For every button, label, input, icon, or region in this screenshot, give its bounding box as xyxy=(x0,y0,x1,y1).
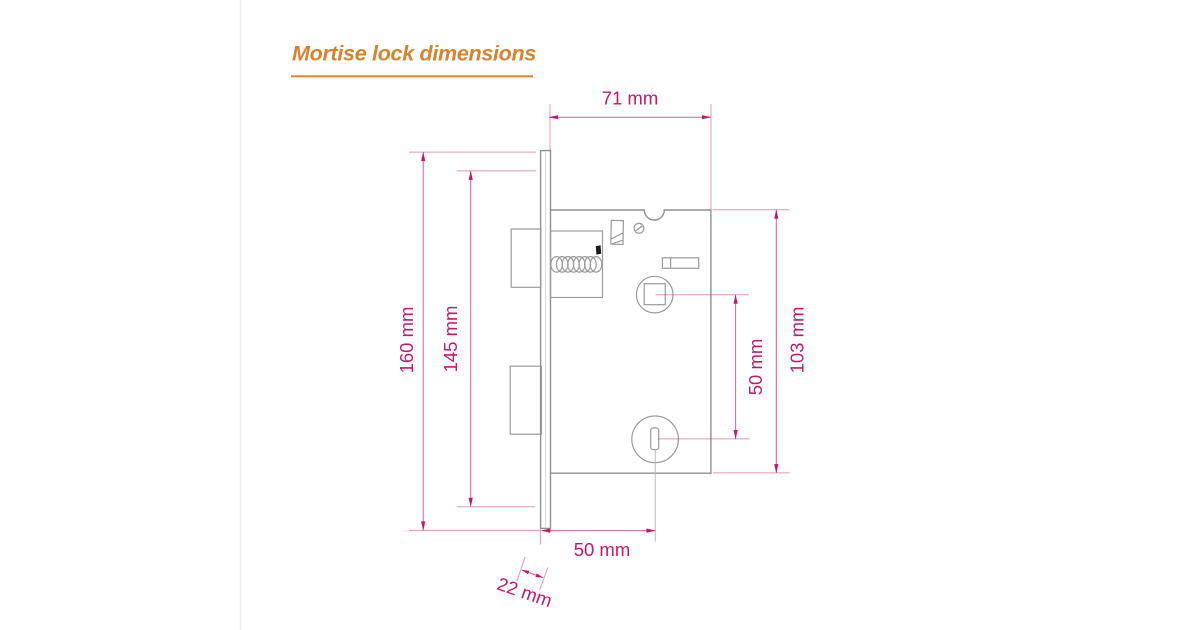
svg-text:50 mm: 50 mm xyxy=(574,539,631,560)
svg-text:103 mm: 103 mm xyxy=(787,307,808,374)
svg-text:71 mm: 71 mm xyxy=(602,88,659,109)
svg-text:50 mm: 50 mm xyxy=(745,339,766,396)
svg-text:Mortise lock dimensions: Mortise lock dimensions xyxy=(292,42,536,66)
svg-text:145 mm: 145 mm xyxy=(440,306,461,373)
svg-text:160 mm: 160 mm xyxy=(396,307,417,374)
